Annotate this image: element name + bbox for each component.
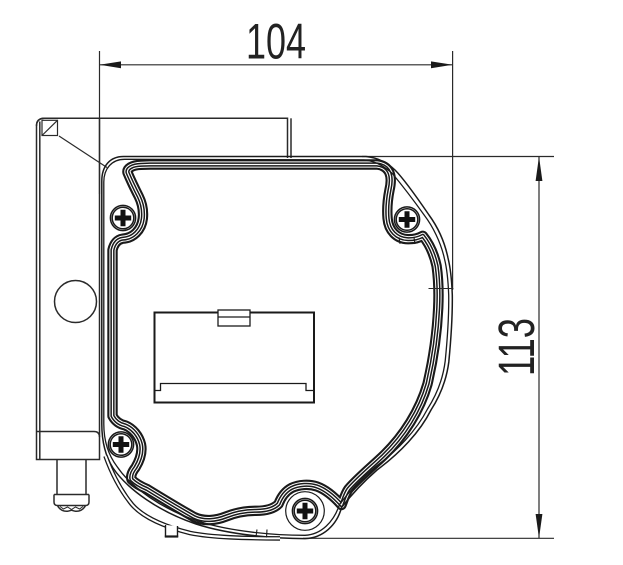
svg-text:113: 113: [488, 318, 545, 376]
svg-text:104: 104: [246, 14, 306, 70]
